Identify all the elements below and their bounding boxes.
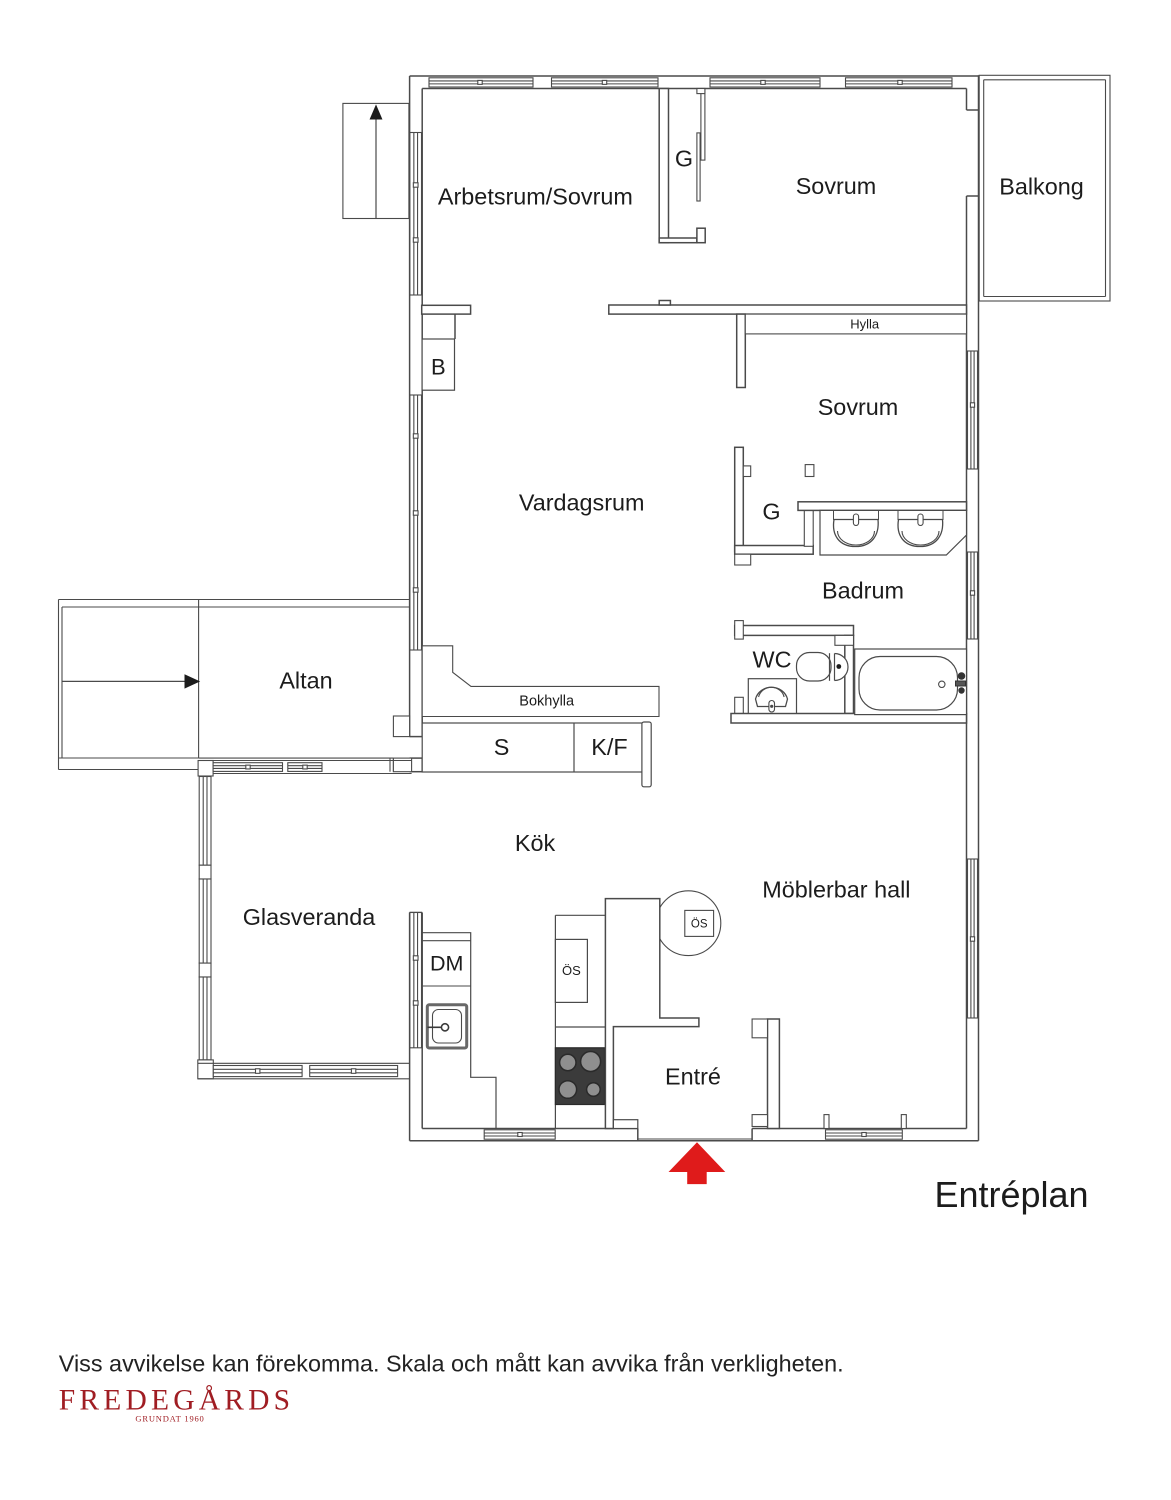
svg-text:K/F: K/F	[591, 734, 627, 760]
svg-text:DM: DM	[430, 952, 463, 976]
svg-text:Balkong: Balkong	[999, 174, 1084, 200]
svg-text:Vardagsrum: Vardagsrum	[519, 490, 645, 516]
svg-text:Viss avvikelse kan förekomma.: Viss avvikelse kan förekomma. Skala och …	[59, 1351, 844, 1377]
svg-text:Glasveranda: Glasveranda	[243, 904, 377, 930]
svg-text:B: B	[431, 355, 446, 380]
svg-text:GRUNDAT 1960: GRUNDAT 1960	[135, 1414, 204, 1424]
svg-text:Sovrum: Sovrum	[818, 394, 899, 420]
svg-text:Entréplan: Entréplan	[934, 1174, 1088, 1215]
svg-text:Badrum: Badrum	[822, 578, 904, 604]
svg-text:ÖS: ÖS	[562, 963, 581, 978]
svg-text:ÖS: ÖS	[691, 919, 708, 931]
svg-text:WC: WC	[753, 647, 792, 673]
svg-text:Altan: Altan	[279, 668, 332, 694]
svg-text:Sovrum: Sovrum	[796, 173, 877, 199]
svg-text:FREDEGÅRDS: FREDEGÅRDS	[59, 1385, 294, 1417]
svg-text:Arbetsrum/Sovrum: Arbetsrum/Sovrum	[438, 184, 633, 210]
svg-text:Kök: Kök	[515, 830, 556, 856]
svg-text:Hylla: Hylla	[850, 316, 880, 331]
svg-text:Entré: Entré	[665, 1064, 721, 1090]
svg-text:Möblerbar hall: Möblerbar hall	[762, 877, 910, 903]
svg-text:G: G	[762, 499, 780, 525]
svg-text:G: G	[675, 146, 693, 172]
svg-text:Bokhylla: Bokhylla	[519, 694, 575, 710]
svg-text:S: S	[494, 734, 510, 760]
